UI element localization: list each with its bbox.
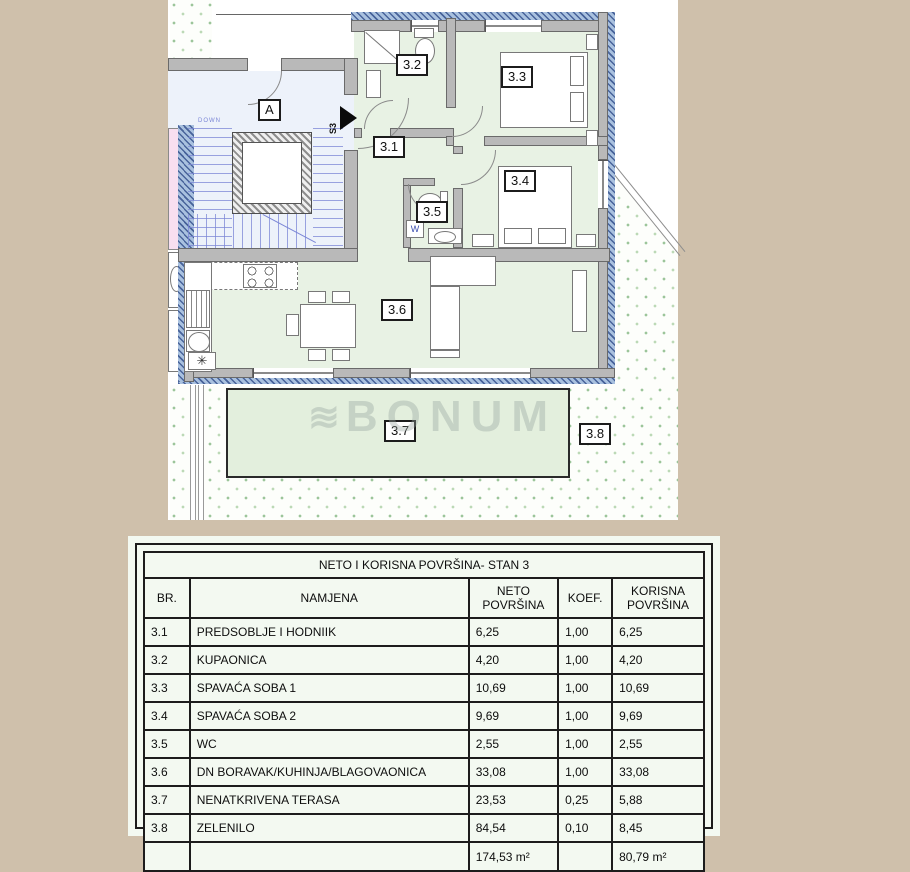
table-title: NETO I KORISNA POVRŠINA- STAN 3 xyxy=(144,552,704,578)
wall xyxy=(446,18,456,108)
cell-namjena: ZELENILO xyxy=(190,814,469,842)
sliding-door xyxy=(410,368,532,378)
bathroom-sink xyxy=(366,70,381,98)
cell-korisna: 4,20 xyxy=(612,646,704,674)
header-koef: KOEF. xyxy=(558,578,612,618)
terrace-door xyxy=(598,160,608,210)
cell-total-korisna: 80,79 m² xyxy=(612,842,704,871)
table-row: 3.6 DN BORAVAK/KUHINJA/BLAGOVAONICA 33,0… xyxy=(144,758,704,786)
footpath-line xyxy=(190,385,196,520)
table-row: 3.5 WC 2,55 1,00 2,55 xyxy=(144,730,704,758)
footpath-line xyxy=(198,385,204,520)
label-room-3-2: 3.2 xyxy=(396,54,428,76)
pillow xyxy=(570,56,584,86)
cell-empty xyxy=(190,842,469,871)
area-table: NETO I KORISNA POVRŠINA- STAN 3 BR. NAMJ… xyxy=(143,551,705,872)
listing-page: { "plan": { "labels": { "a": "A", "s3": … xyxy=(0,0,910,843)
cell-br: 3.7 xyxy=(144,786,190,814)
wall xyxy=(598,208,608,384)
area-table-border: NETO I KORISNA POVRŠINA- STAN 3 BR. NAMJ… xyxy=(135,543,713,829)
oven xyxy=(186,290,210,328)
entrance-direction-label: S3 xyxy=(328,106,338,134)
grass-area-top-left xyxy=(170,0,212,62)
cell-koef: 1,00 xyxy=(558,674,612,702)
nightstand xyxy=(576,234,596,247)
nightstand xyxy=(586,34,598,50)
cell-koef: 1,00 xyxy=(558,618,612,646)
cell-korisna: 10,69 xyxy=(612,674,704,702)
cell-namjena: NENATKRIVENA TERASA xyxy=(190,786,469,814)
table-header-row: BR. NAMJENA NETO POVRŠINA KOEF. KORISNA … xyxy=(144,578,704,618)
stairs-flight-right xyxy=(313,128,343,248)
pillow xyxy=(504,228,532,244)
wall xyxy=(333,368,410,378)
cell-neto: 4,20 xyxy=(469,646,558,674)
cell-koef: 1,00 xyxy=(558,702,612,730)
table-row: 3.7 NENATKRIVENA TERASA 23,53 0,25 5,88 xyxy=(144,786,704,814)
header-neto: NETO POVRŠINA xyxy=(469,578,558,618)
cell-br: 3.4 xyxy=(144,702,190,730)
header-namjena: NAMJENA xyxy=(190,578,469,618)
area-table-panel: NETO I KORISNA POVRŠINA- STAN 3 BR. NAMJ… xyxy=(128,536,720,836)
cell-br: 3.5 xyxy=(144,730,190,758)
cell-br: 3.8 xyxy=(144,814,190,842)
cell-koef: 0,25 xyxy=(558,786,612,814)
wc-sink xyxy=(434,231,456,243)
window xyxy=(253,368,335,378)
cell-namjena: WC xyxy=(190,730,469,758)
sofa-top-arm xyxy=(430,256,496,286)
nightstand xyxy=(472,234,494,247)
cell-koef: 1,00 xyxy=(558,646,612,674)
sofa-left-arm xyxy=(430,286,460,350)
fridge: ✳ xyxy=(188,352,216,370)
label-room-3-1: 3.1 xyxy=(373,136,405,158)
dining-table xyxy=(300,304,356,348)
cell-br: 3.3 xyxy=(144,674,190,702)
header-br: BR. xyxy=(144,578,190,618)
cell-neto: 2,55 xyxy=(469,730,558,758)
label-corridor-a: A xyxy=(258,99,281,121)
cell-korisna: 5,88 xyxy=(612,786,704,814)
label-room-3-4: 3.4 xyxy=(504,170,536,192)
label-room-3-6: 3.6 xyxy=(381,299,413,321)
cell-empty xyxy=(558,842,612,871)
cell-koef: 0,10 xyxy=(558,814,612,842)
cell-korisna: 9,69 xyxy=(612,702,704,730)
nightstand xyxy=(586,130,598,146)
washing-machine-glyph: W xyxy=(411,224,420,234)
watermark-text: BONUM xyxy=(346,392,557,442)
cell-neto: 23,53 xyxy=(469,786,558,814)
cell-br: 3.1 xyxy=(144,618,190,646)
cell-namjena: DN BORAVAK/KUHINJA/BLAGOVAONICA xyxy=(190,758,469,786)
window xyxy=(485,20,543,32)
cell-korisna: 8,45 xyxy=(612,814,704,842)
cell-korisna: 2,55 xyxy=(612,730,704,758)
table-row: 3.8 ZELENILO 84,54 0,10 8,45 xyxy=(144,814,704,842)
cell-neto: 84,54 xyxy=(469,814,558,842)
cell-namjena: SPAVAĆA SOBA 2 xyxy=(190,702,469,730)
cell-namjena: PREDSOBLJE I HODNIIK xyxy=(190,618,469,646)
wall xyxy=(168,58,248,71)
table-total-row: 174,53 m² 80,79 m² xyxy=(144,842,704,871)
stove xyxy=(243,264,277,288)
cell-korisna: 33,08 xyxy=(612,758,704,786)
chair xyxy=(308,291,326,303)
wall xyxy=(344,150,358,255)
toilet-tank xyxy=(414,28,434,38)
chair xyxy=(332,349,350,361)
stairs-flight-bottom xyxy=(188,214,310,248)
cell-namjena: SPAVAĆA SOBA 1 xyxy=(190,674,469,702)
table-row: 3.1 PREDSOBLJE I HODNIIK 6,25 1,00 6,25 xyxy=(144,618,704,646)
wall xyxy=(344,58,358,95)
cell-total-neto: 174,53 m² xyxy=(469,842,558,871)
overhang-line xyxy=(216,14,358,15)
chair xyxy=(332,291,350,303)
wall xyxy=(541,20,605,32)
wall xyxy=(446,136,454,146)
cell-neto: 33,08 xyxy=(469,758,558,786)
wall-exterior-hatch-bottom xyxy=(178,378,615,384)
wall-exterior-hatch-top xyxy=(351,12,615,20)
cell-br: 3.2 xyxy=(144,646,190,674)
cell-namjena: KUPAONICA xyxy=(190,646,469,674)
wall-exterior-hatch-right xyxy=(608,12,615,384)
pillow xyxy=(570,92,584,122)
table-row: 3.3 SPAVAĆA SOBA 1 10,69 1,00 10,69 xyxy=(144,674,704,702)
sofa-foot xyxy=(430,350,460,358)
wall xyxy=(178,248,358,262)
table-row: 3.2 KUPAONICA 4,20 1,00 4,20 xyxy=(144,646,704,674)
cell-neto: 6,25 xyxy=(469,618,558,646)
label-room-3-5: 3.5 xyxy=(416,201,448,223)
chair xyxy=(308,349,326,361)
pillow xyxy=(538,228,566,244)
down-label: DOWN xyxy=(198,118,221,124)
cell-koef: 1,00 xyxy=(558,758,612,786)
wall xyxy=(530,368,615,378)
cell-empty xyxy=(144,842,190,871)
cell-korisna: 6,25 xyxy=(612,618,704,646)
watermark-logo-icon: ≋ xyxy=(308,395,340,440)
cell-neto: 10,69 xyxy=(469,674,558,702)
cell-koef: 1,00 xyxy=(558,730,612,758)
table-row: 3.4 SPAVAĆA SOBA 2 9,69 1,00 9,69 xyxy=(144,702,704,730)
kitchen-sink xyxy=(188,332,210,352)
header-korisna: KORISNA POVRŠINA xyxy=(612,578,704,618)
entrance-arrow-icon xyxy=(340,106,357,130)
watermark: ≋ BONUM xyxy=(308,386,628,448)
cell-neto: 9,69 xyxy=(469,702,558,730)
label-room-3-3: 3.3 xyxy=(501,66,533,88)
fridge-glyph: ✳ xyxy=(197,353,208,369)
cell-br: 3.6 xyxy=(144,758,190,786)
chair xyxy=(286,314,299,336)
table-title-row: NETO I KORISNA POVRŠINA- STAN 3 xyxy=(144,552,704,578)
elevator-cab xyxy=(242,142,302,204)
floor-plan: DOWN S3 W ✳ A 3.1 3.2 3.3 3.4 xyxy=(168,0,678,520)
tv-cabinet xyxy=(572,270,587,332)
